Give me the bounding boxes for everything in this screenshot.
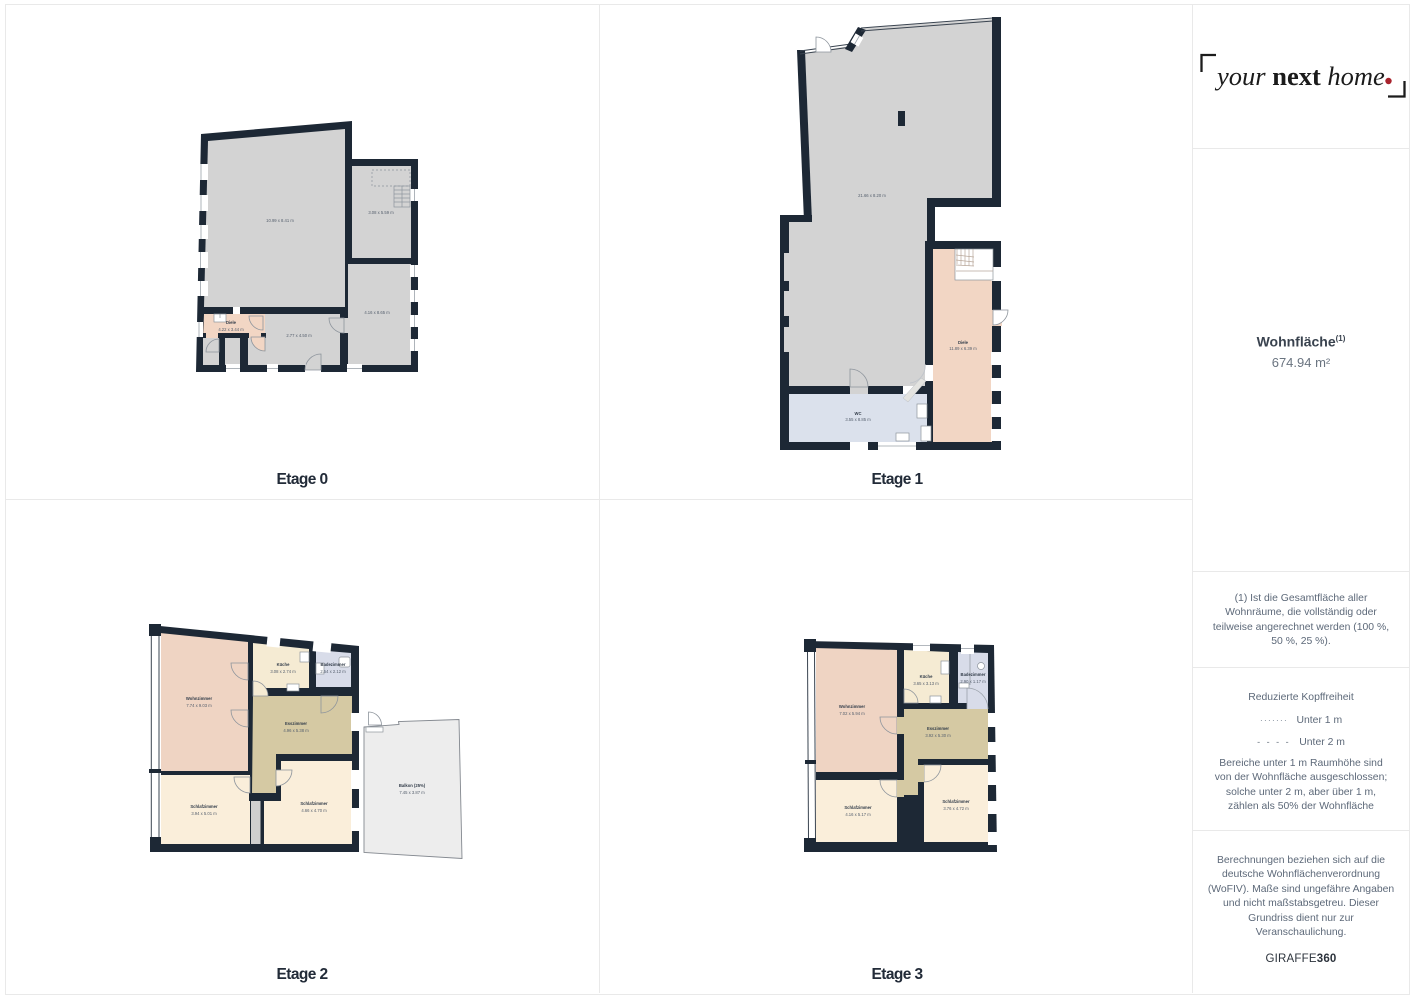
svg-text:4.16 x 8.65 m: 4.16 x 8.65 m <box>364 310 390 315</box>
svg-text:Badezimmer: Badezimmer <box>961 672 986 677</box>
svg-text:2.90 x 1.17 m: 2.90 x 1.17 m <box>960 679 986 684</box>
svg-text:Küche: Küche <box>277 662 290 667</box>
svg-text:4.96 x 5.38 m: 4.96 x 5.38 m <box>283 728 309 733</box>
svg-text:2.54 x 2.12 m: 2.54 x 2.12 m <box>320 669 346 674</box>
svg-text:3.94 x 5.01 m: 3.94 x 5.01 m <box>191 811 217 816</box>
svg-text:11.89 x 6.39 m: 11.89 x 6.39 m <box>949 346 977 351</box>
svg-text:4.66 x 4.70 m: 4.66 x 4.70 m <box>301 808 327 813</box>
svg-text:your next home: your next home <box>1214 61 1385 91</box>
svg-text:Diele: Diele <box>958 340 969 345</box>
svg-text:21.66 x 8.20 m: 21.66 x 8.20 m <box>858 193 886 198</box>
svg-text:3.92 x 5.30 m: 3.92 x 5.30 m <box>925 733 951 738</box>
svg-text:Esszimmer: Esszimmer <box>285 721 307 726</box>
svg-text:Wohnzimmer: Wohnzimmer <box>186 696 213 701</box>
svg-text:Badezimmer: Badezimmer <box>321 662 346 667</box>
svg-text:Küche: Küche <box>920 674 933 679</box>
svg-text:Schlafzimmer: Schlafzimmer <box>844 805 872 810</box>
svg-text:2.77 x 4.50 m: 2.77 x 4.50 m <box>286 333 312 338</box>
svg-text:WC: WC <box>855 411 862 416</box>
svg-text:4.22 x 3.44 m: 4.22 x 3.44 m <box>218 327 244 332</box>
svg-text:3.65 x 3.13 m: 3.65 x 3.13 m <box>913 681 939 686</box>
svg-text:4.16 x 5.17 m: 4.16 x 5.17 m <box>845 812 871 817</box>
svg-text:3.55 x 8.85 m: 3.55 x 8.85 m <box>845 417 871 422</box>
svg-text:7.45 x 3.87 m: 7.45 x 3.87 m <box>399 790 425 795</box>
svg-text:Schlafzimmer: Schlafzimmer <box>942 799 970 804</box>
svg-text:Diele: Diele <box>226 320 237 325</box>
svg-text:3.08 x 5.59 m: 3.08 x 5.59 m <box>368 210 394 215</box>
svg-text:Balkon (25%): Balkon (25%) <box>399 783 426 788</box>
svg-text:7.74 x 9.03 m: 7.74 x 9.03 m <box>186 703 212 708</box>
svg-text:10.99 x 8.41 m: 10.99 x 8.41 m <box>266 218 294 223</box>
svg-text:Wohnzimmer: Wohnzimmer <box>839 704 866 709</box>
svg-text:3.76 x 4.72 m: 3.76 x 4.72 m <box>943 806 969 811</box>
svg-text:Schlafzimmer: Schlafzimmer <box>190 804 218 809</box>
svg-text:7.02 x 5.94 m: 7.02 x 5.94 m <box>839 711 865 716</box>
svg-text:3.08 x 2.74 m: 3.08 x 2.74 m <box>270 669 296 674</box>
svg-text:Schlafzimmer: Schlafzimmer <box>300 801 328 806</box>
svg-text:Esszimmer: Esszimmer <box>927 726 949 731</box>
